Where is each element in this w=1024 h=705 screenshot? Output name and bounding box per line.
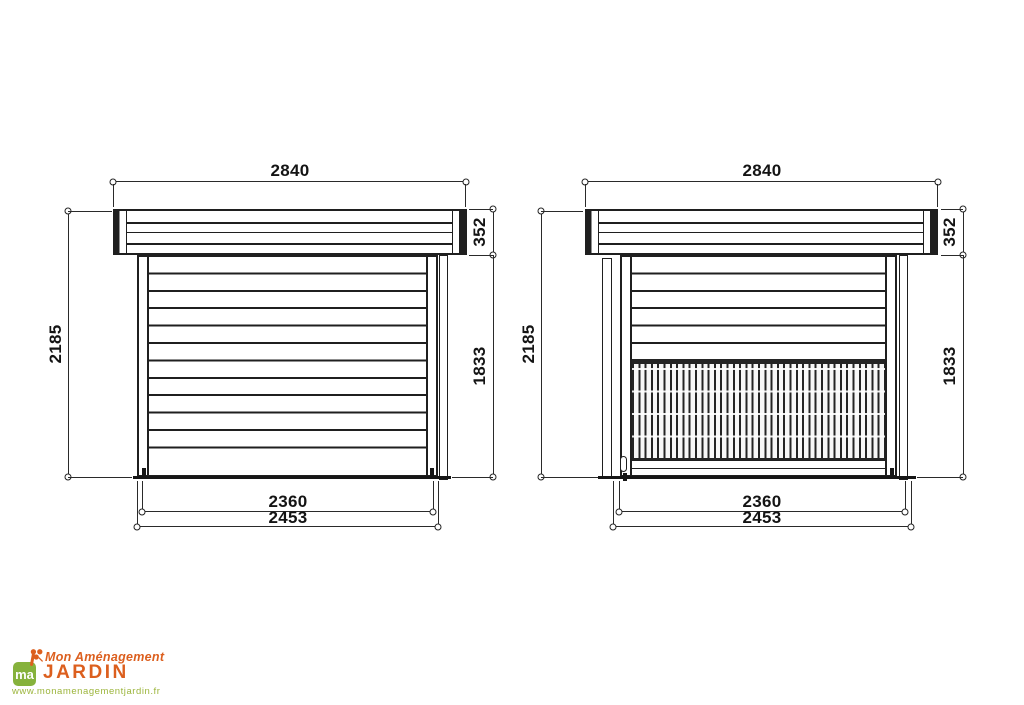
- logo-monogram: ma: [15, 667, 34, 682]
- logo-wordmark: JARDIN: [43, 662, 129, 684]
- roof-band: [113, 209, 467, 255]
- dim-label-roof-width: 2840: [270, 161, 309, 181]
- logo-website-url: www.monamenagementjardin.fr: [12, 686, 160, 697]
- roof-board-line: [599, 222, 923, 224]
- dim-extension-line: [941, 209, 963, 210]
- dim-endpoint: [139, 509, 146, 516]
- dim-endpoint: [610, 524, 617, 531]
- dim-label-outer-width: 2453: [742, 508, 781, 528]
- dim-endpoint: [902, 509, 909, 516]
- dim-endpoint: [908, 524, 915, 531]
- dim-endpoint: [430, 509, 437, 516]
- dim-endpoint: [616, 509, 623, 516]
- vertical-slat-shutter: [630, 364, 887, 460]
- horizontal-siding: [147, 257, 428, 462]
- roof-band: [585, 209, 938, 255]
- dim-extension-line: [941, 255, 963, 256]
- shutter-handle: [620, 456, 627, 472]
- ground-line: [133, 476, 451, 479]
- door-side-trim: [439, 255, 448, 480]
- dim-line-overall-height: [68, 211, 69, 477]
- roof-board-line: [127, 232, 452, 233]
- dim-extension-line: [541, 211, 583, 212]
- roof-board-line: [599, 243, 923, 245]
- dim-line-roof-width: [585, 181, 938, 182]
- dim-line-roof-thickness: [493, 209, 494, 255]
- dim-label-roof-thickness: 352: [470, 217, 490, 246]
- dim-label-overall-height: 2185: [46, 324, 66, 363]
- dim-endpoint: [134, 524, 141, 531]
- dim-label-roof-thickness: 352: [940, 217, 960, 246]
- roof-board-line: [599, 232, 923, 233]
- dim-extension-line: [469, 255, 493, 256]
- door-jamb-post: [602, 258, 612, 478]
- dim-label-wall-height: 1833: [470, 346, 490, 385]
- corner-post-line: [885, 257, 887, 475]
- roof-end-cap-left: [587, 211, 599, 253]
- roof-board-line: [127, 243, 452, 245]
- wall-front: [137, 255, 438, 477]
- technical-drawing-canvas: 2840 2185 352 1833: [0, 0, 1024, 705]
- corner-post-line: [147, 257, 149, 475]
- dim-label-roof-width: 2840: [742, 161, 781, 181]
- roof-end-cap-right: [923, 211, 936, 253]
- dim-extension-line: [585, 184, 586, 207]
- dim-endpoint: [435, 524, 442, 531]
- dim-label-outer-width: 2453: [268, 508, 307, 528]
- dim-extension-line: [68, 211, 112, 212]
- dim-extension-line: [68, 477, 132, 478]
- corner-post-line: [630, 257, 632, 475]
- dim-extension-line: [452, 477, 493, 478]
- horizontal-siding: [630, 257, 887, 359]
- door-side-trim: [899, 255, 908, 480]
- dim-line-wall-height: [963, 255, 964, 477]
- shutter-bottom-rail: [630, 460, 887, 469]
- corner-post-line: [426, 257, 428, 475]
- wall-front-counter: [620, 255, 897, 477]
- dim-line-wall-height: [493, 255, 494, 477]
- dim-label-wall-height: 1833: [940, 346, 960, 385]
- ground-line: [598, 476, 916, 479]
- roof-end-cap-left: [115, 211, 127, 253]
- roof-board-line: [127, 222, 452, 224]
- dim-extension-line: [917, 477, 963, 478]
- dim-label-overall-height: 2185: [519, 324, 539, 363]
- dim-line-overall-height: [541, 211, 542, 477]
- dim-extension-line: [541, 477, 598, 478]
- dim-extension-line: [469, 209, 493, 210]
- dim-extension-line: [937, 184, 938, 207]
- roof-end-cap-right: [452, 211, 465, 253]
- dim-extension-line: [465, 184, 466, 207]
- dim-extension-line: [113, 184, 114, 207]
- dim-line-roof-width: [113, 181, 466, 182]
- dim-line-roof-thickness: [963, 209, 964, 255]
